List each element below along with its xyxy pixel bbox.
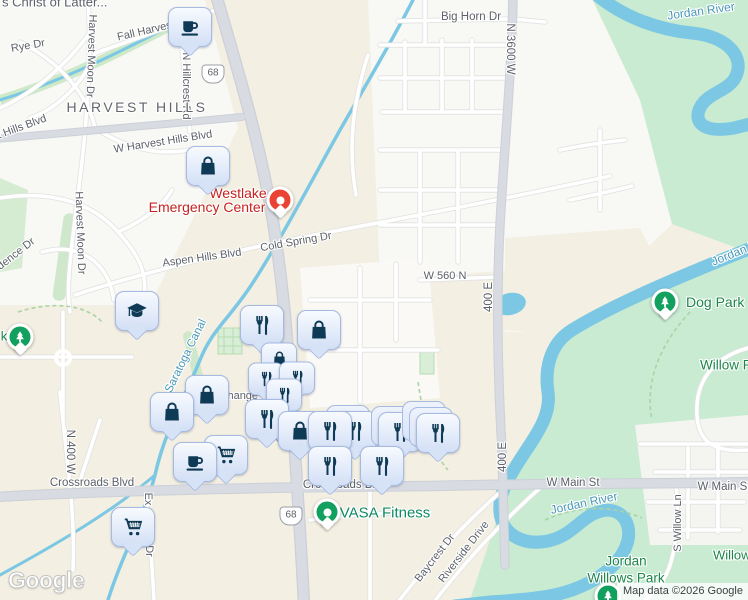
map-label: Emergency Center xyxy=(149,199,266,215)
map-label: Big Horn Dr xyxy=(441,11,501,23)
map-attribution: Map data ©2026 Google xyxy=(617,583,748,600)
marker-card xyxy=(297,310,341,350)
marker-card xyxy=(115,291,159,331)
restaurant-icon xyxy=(250,313,274,337)
shopping-cart-icon xyxy=(121,515,145,539)
map-label: W Main St xyxy=(697,481,748,493)
map-label: S Willow Ln xyxy=(672,494,684,551)
graduation-cap-icon xyxy=(125,299,149,323)
marker-bag[interactable] xyxy=(297,310,341,350)
pin-med[interactable] xyxy=(267,187,294,214)
marker-card xyxy=(416,413,460,453)
marker-card xyxy=(240,305,284,345)
marker-bag[interactable] xyxy=(186,146,230,186)
pin-dot[interactable] xyxy=(314,499,341,526)
shopping-bag-icon xyxy=(160,400,184,424)
marker-fork[interactable] xyxy=(416,413,460,453)
map-canvas[interactable]: s Christ of Latter...Big Horn DrN 3600 W… xyxy=(0,0,748,600)
restaurant-icon xyxy=(318,419,342,443)
map-label: HARVEST HILLS xyxy=(67,99,208,115)
map-label: Crossroads Blvd xyxy=(50,477,134,489)
route-shield: 68 xyxy=(280,507,303,526)
marker-bag[interactable] xyxy=(150,392,194,432)
restaurant-icon xyxy=(255,407,279,431)
marker-card xyxy=(308,446,352,486)
pin-inner xyxy=(598,586,619,600)
map-label: Ex xyxy=(142,493,154,506)
marker-card xyxy=(308,411,352,451)
pin-inner xyxy=(317,502,338,523)
marker-grad[interactable] xyxy=(115,291,159,331)
shopping-cart-icon xyxy=(214,443,238,467)
map-label: N 3600 W xyxy=(504,23,516,74)
marker-card xyxy=(111,507,155,547)
map-label: N 400 W xyxy=(64,430,76,475)
google-logo[interactable]: Google xyxy=(8,567,84,594)
map-label: 400 E xyxy=(483,282,495,312)
marker-card xyxy=(186,146,230,186)
map-label: s Christ of Latter... xyxy=(2,0,108,10)
marker-coffee[interactable] xyxy=(173,442,217,482)
shopping-bag-icon xyxy=(195,383,219,407)
marker-fork[interactable] xyxy=(240,305,284,345)
shopping-bag-icon xyxy=(196,154,220,178)
map-label: Dog Park a xyxy=(686,294,748,310)
pin-inner xyxy=(655,292,676,313)
tree-icon xyxy=(658,295,673,310)
marker-fork[interactable] xyxy=(308,446,352,486)
map-label: 400 E xyxy=(497,442,509,472)
marker-card xyxy=(173,442,217,482)
restaurant-icon xyxy=(370,454,394,478)
restaurant-icon xyxy=(318,454,342,478)
marker-card xyxy=(360,446,404,486)
pin-tree[interactable] xyxy=(652,289,679,316)
coffee-icon xyxy=(178,15,202,39)
marker-cart[interactable] xyxy=(111,507,155,547)
marker-fork[interactable] xyxy=(308,411,352,451)
pin-inner xyxy=(10,327,31,348)
marker-fork[interactable] xyxy=(360,446,404,486)
pin-inner xyxy=(270,190,291,211)
map-label: VASA Fitness xyxy=(340,505,431,522)
map-label: Willow xyxy=(713,548,748,563)
map-label: Willow P xyxy=(700,358,748,373)
map-label: W 560 N xyxy=(424,270,467,282)
marker-coffee[interactable] xyxy=(168,7,212,47)
restaurant-icon xyxy=(426,421,450,445)
marker-card xyxy=(168,7,212,47)
tree-icon xyxy=(601,589,616,600)
map-label: W Main St xyxy=(546,477,599,489)
map-label: Jordan xyxy=(605,554,646,569)
pin-tree[interactable] xyxy=(7,324,34,351)
route-shield: 68 xyxy=(202,65,225,84)
shopping-bag-icon xyxy=(307,318,331,342)
marker-card xyxy=(150,392,194,432)
tree-icon xyxy=(13,330,28,345)
coffee-icon xyxy=(183,450,207,474)
